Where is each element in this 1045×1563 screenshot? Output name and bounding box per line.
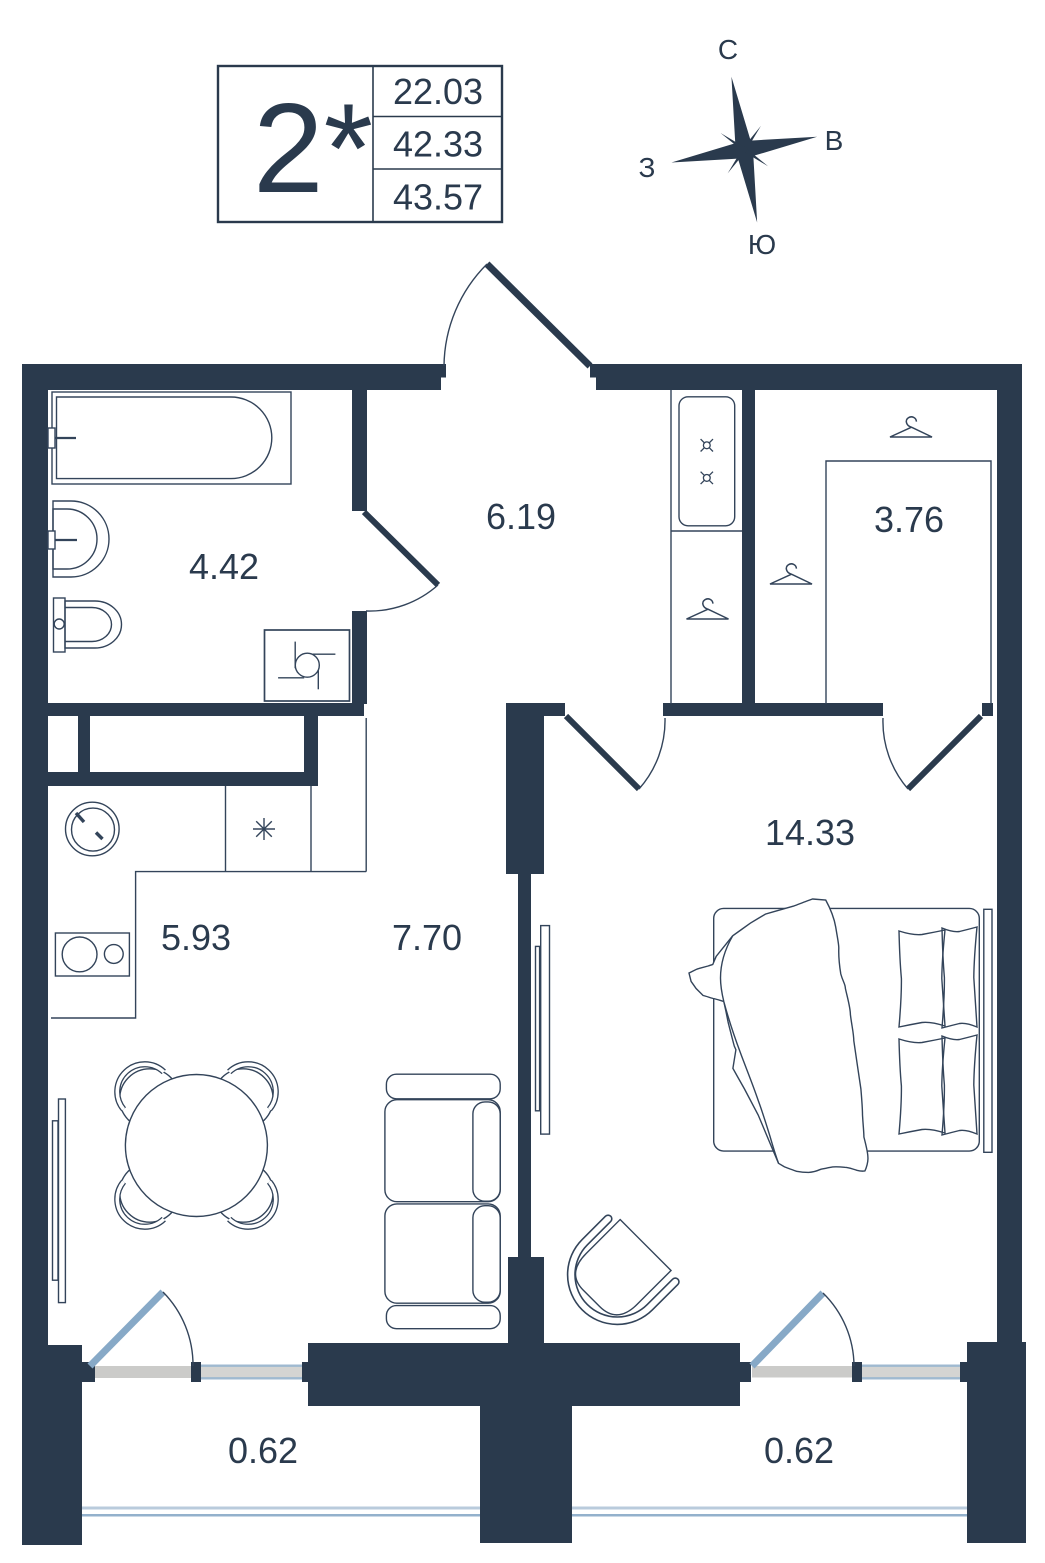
svg-text:Ю: Ю [748, 229, 776, 260]
svg-text:43.57: 43.57 [393, 177, 483, 218]
svg-text:В: В [825, 125, 844, 156]
svg-text:7.70: 7.70 [392, 917, 462, 958]
svg-text:4.42: 4.42 [189, 546, 259, 587]
svg-text:3.76: 3.76 [874, 499, 944, 540]
svg-text:42.33: 42.33 [393, 124, 483, 165]
svg-text:0.62: 0.62 [228, 1430, 298, 1471]
svg-text:22.03: 22.03 [393, 71, 483, 112]
svg-text:5.93: 5.93 [161, 917, 231, 958]
svg-text:6.19: 6.19 [486, 496, 556, 537]
svg-text:14.33: 14.33 [765, 812, 855, 853]
svg-text:0.62: 0.62 [764, 1430, 834, 1471]
svg-text:С: С [718, 34, 738, 65]
svg-text:З: З [639, 152, 656, 183]
svg-text:2*: 2* [253, 77, 373, 219]
